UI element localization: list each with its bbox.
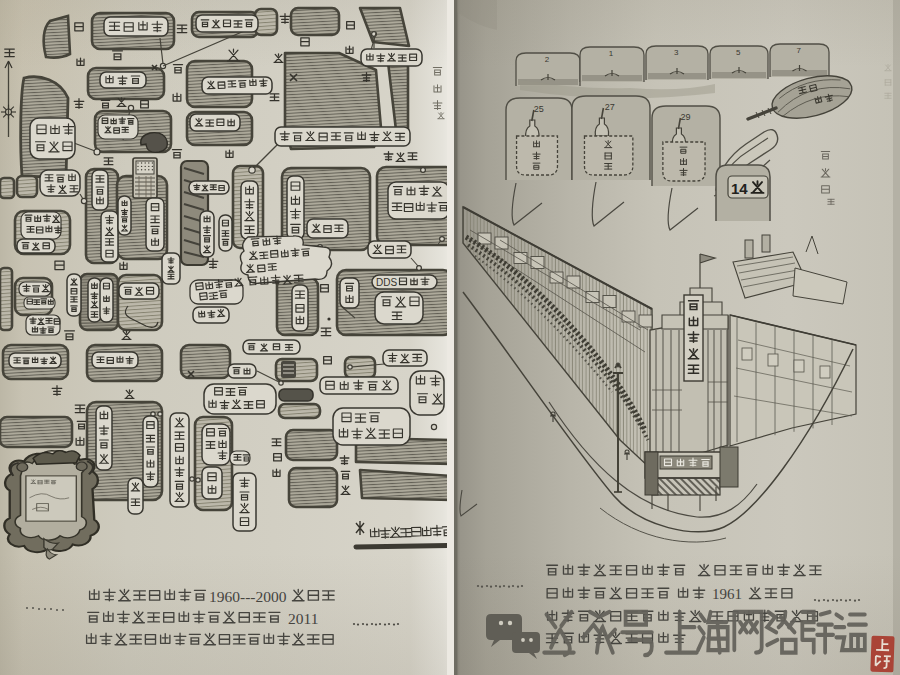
svg-text:25: 25 bbox=[534, 104, 544, 114]
svg-text:DDS: DDS bbox=[376, 277, 397, 288]
svg-text:1961: 1961 bbox=[712, 586, 742, 602]
svg-text:3: 3 bbox=[674, 48, 679, 57]
svg-text:29: 29 bbox=[681, 112, 691, 122]
svg-text:14: 14 bbox=[731, 180, 748, 197]
svg-text:1960---2000: 1960---2000 bbox=[209, 588, 287, 605]
svg-text:7: 7 bbox=[797, 46, 802, 55]
svg-text:5: 5 bbox=[736, 48, 741, 57]
svg-text:2011: 2011 bbox=[288, 610, 318, 627]
svg-text:2: 2 bbox=[545, 55, 550, 64]
svg-text:27: 27 bbox=[605, 102, 615, 112]
svg-text:1: 1 bbox=[609, 49, 614, 58]
